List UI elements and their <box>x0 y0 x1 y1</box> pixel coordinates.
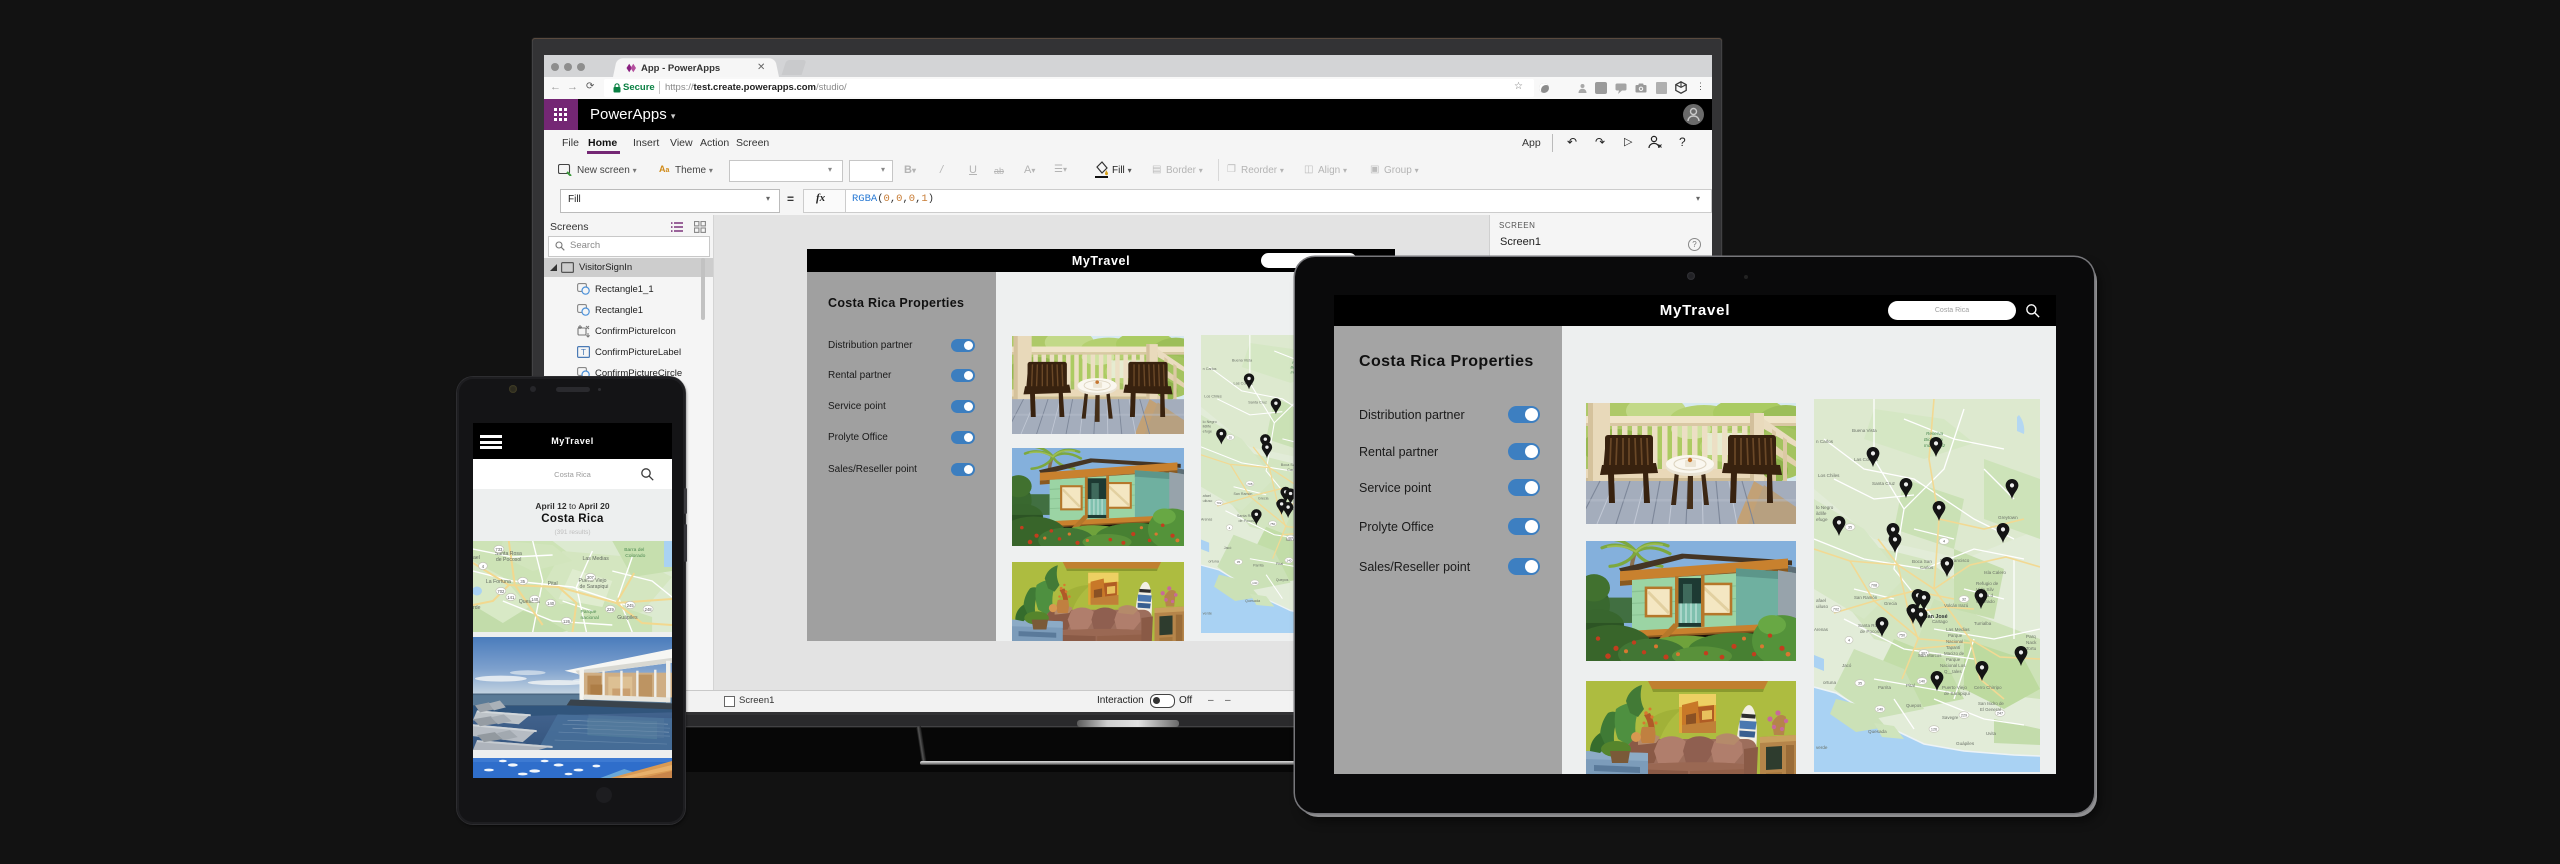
svg-text:T: T <box>581 348 586 357</box>
